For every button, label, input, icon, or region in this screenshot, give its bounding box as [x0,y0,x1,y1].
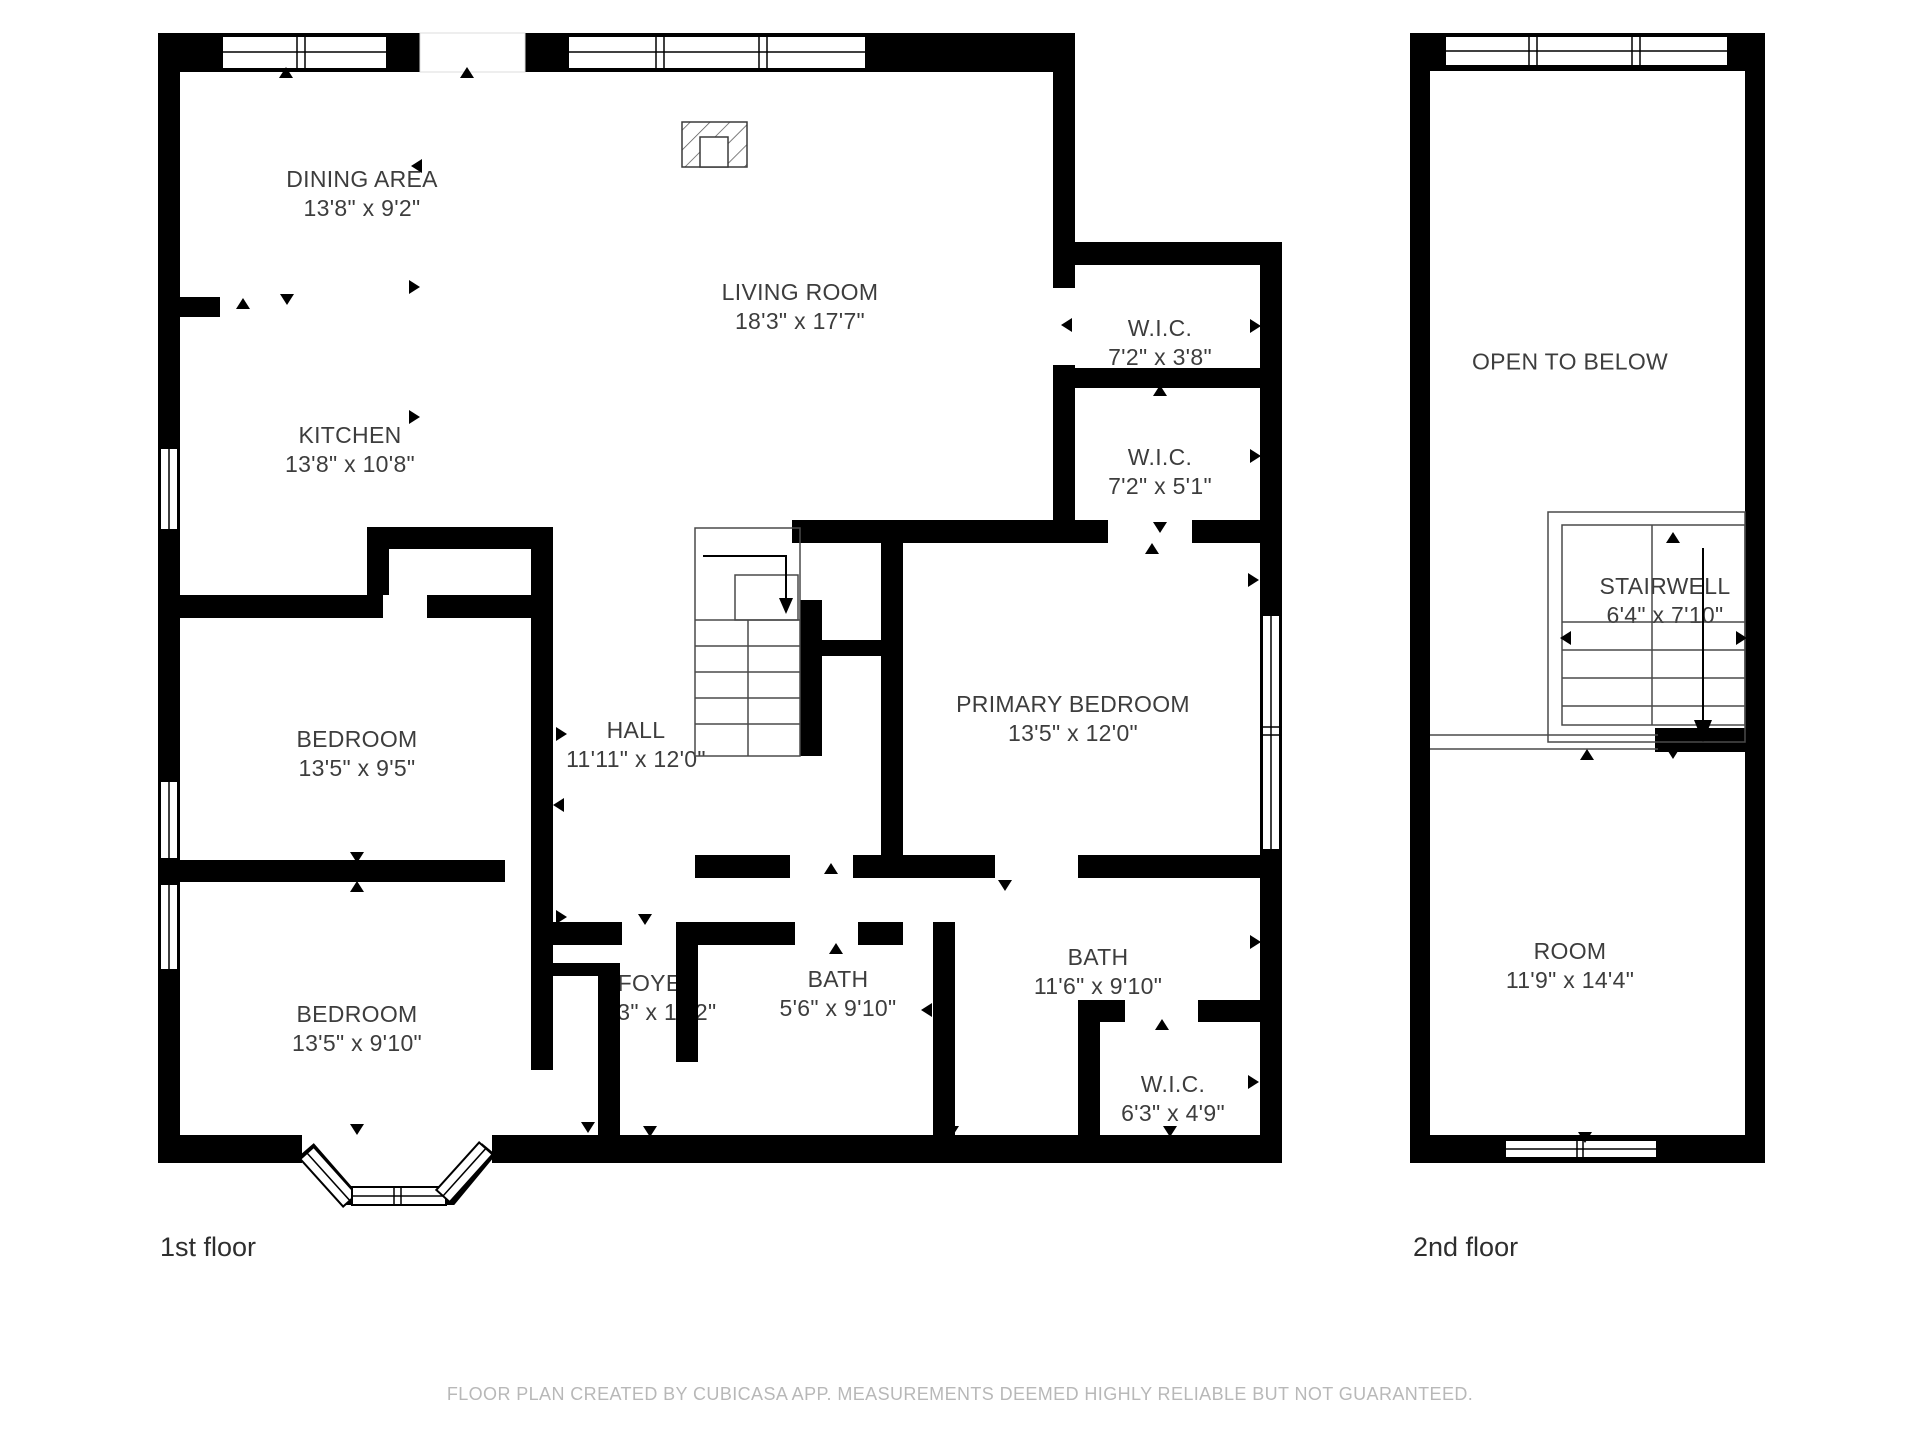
room-name: STAIRWELL [1600,572,1731,601]
room-label-bath-small: BATH 5'6" x 9'10" [780,965,897,1023]
room-label-bedroom-1: BEDROOM 13'5" x 9'5" [297,725,418,783]
room-dims: 18'3" x 17'7" [722,307,879,336]
room-label-stairwell: STAIRWELL 6'4" x 7'10" [1600,572,1731,630]
room-name: FOYER [600,969,717,998]
room-label-kitchen: KITCHEN 13'8" x 10'8" [285,421,415,479]
room-name: ROOM [1506,937,1634,966]
room-dims: 13'8" x 9'2" [286,194,438,223]
room-name: W.I.C. [1108,314,1212,343]
caption-2nd-floor: 2nd floor [1413,1232,1518,1263]
room-labels-layer: DINING AREA 13'8" x 9'2" LIVING ROOM 18'… [0,0,1920,1440]
room-label-bath-large: BATH 11'6" x 9'10" [1034,943,1162,1001]
room-name: W.I.C. [1121,1070,1225,1099]
room-dims: 7'2" x 3'8" [1108,343,1212,372]
room-name: BATH [780,965,897,994]
room-dims: 13'8" x 10'8" [285,450,415,479]
room-name: BEDROOM [292,1000,422,1029]
room-label-room: ROOM 11'9" x 14'4" [1506,937,1634,995]
footer-disclaimer: FLOOR PLAN CREATED BY CUBICASA APP. MEAS… [447,1384,1473,1405]
room-dims: 6'3" x 4'9" [1121,1099,1225,1128]
room-name: W.I.C. [1108,443,1212,472]
room-dims: 5'3" x 10'2" [600,998,717,1027]
room-dims: 11'11" x 12'0" [566,745,706,774]
room-name: BATH [1034,943,1162,972]
room-dims: 5'6" x 9'10" [780,994,897,1023]
room-dims: 11'9" x 14'4" [1506,966,1634,995]
room-dims: 13'5" x 9'10" [292,1029,422,1058]
room-name: BEDROOM [297,725,418,754]
room-name: LIVING ROOM [722,278,879,307]
room-label-wic-3: W.I.C. 6'3" x 4'9" [1121,1070,1225,1128]
room-label-wic-2: W.I.C. 7'2" x 5'1" [1108,443,1212,501]
room-dims: 13'5" x 9'5" [297,754,418,783]
room-name: PRIMARY BEDROOM [956,690,1190,719]
room-name: DINING AREA [286,165,438,194]
room-name: KITCHEN [285,421,415,450]
room-dims: 7'2" x 5'1" [1108,472,1212,501]
room-label-wic-1: W.I.C. 7'2" x 3'8" [1108,314,1212,372]
room-dims: 13'5" x 12'0" [956,719,1190,748]
room-label-open-to-below: OPEN TO BELOW [1472,348,1668,377]
room-name: OPEN TO BELOW [1472,348,1668,377]
room-name: HALL [566,716,706,745]
room-label-bedroom-2: BEDROOM 13'5" x 9'10" [292,1000,422,1058]
caption-1st-floor: 1st floor [160,1232,256,1263]
room-dims: 11'6" x 9'10" [1034,972,1162,1001]
room-dims: 6'4" x 7'10" [1600,601,1731,630]
room-label-dining-area: DINING AREA 13'8" x 9'2" [286,165,438,223]
room-label-hall: HALL 11'11" x 12'0" [566,716,706,774]
room-label-primary-bedroom: PRIMARY BEDROOM 13'5" x 12'0" [956,690,1190,748]
room-label-foyer: FOYER 5'3" x 10'2" [600,969,717,1027]
floor-plan-page: { "page": {"background": "#ffffff"}, "co… [0,0,1920,1440]
floor-plan: DINING AREA 13'8" x 9'2" LIVING ROOM 18'… [0,0,1920,1440]
room-label-living-room: LIVING ROOM 18'3" x 17'7" [722,278,879,336]
